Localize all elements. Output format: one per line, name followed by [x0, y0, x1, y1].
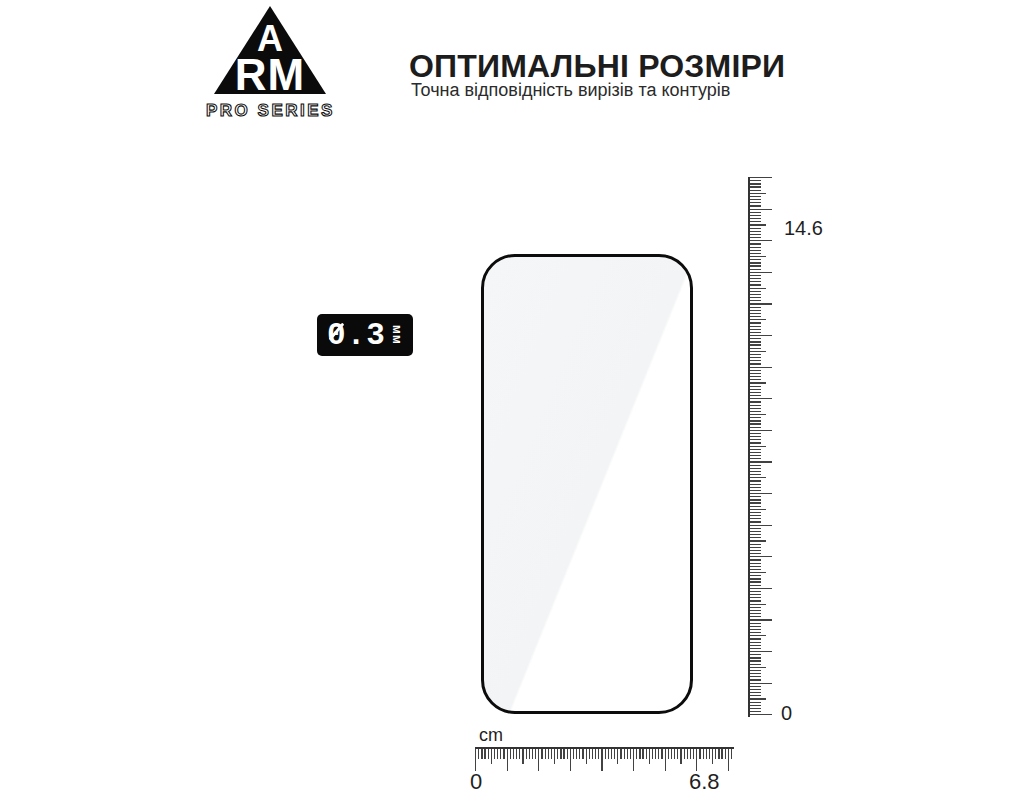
page-subtitle: Точна відповідність вирізів та контурів	[411, 80, 730, 101]
thickness-value: 0.3	[327, 320, 386, 351]
horizontal-ruler-max-label: 6.8	[689, 769, 720, 795]
thickness-badge: 0.3 мм	[317, 314, 413, 356]
horizontal-ruler-zero-label: 0	[470, 769, 482, 795]
brand-logo: A RM PRO SERIES	[214, 6, 326, 118]
vertical-ruler	[748, 177, 772, 717]
screen-protector-shape	[481, 254, 693, 714]
horizontal-ruler	[475, 747, 734, 771]
thickness-unit: мм	[391, 325, 403, 345]
vertical-ruler-max-label: 14.6	[784, 217, 823, 240]
logo-series-label: PRO SERIES	[206, 101, 334, 121]
logo-letters-rm: RM	[214, 53, 326, 97]
vertical-ruler-zero-label: 0	[781, 702, 792, 725]
horizontal-ruler-unit-label: cm	[479, 725, 503, 746]
infographic-canvas: A RM PRO SERIES ОПТИМАЛЬНІ РОЗМІРИ Точна…	[0, 0, 1024, 800]
